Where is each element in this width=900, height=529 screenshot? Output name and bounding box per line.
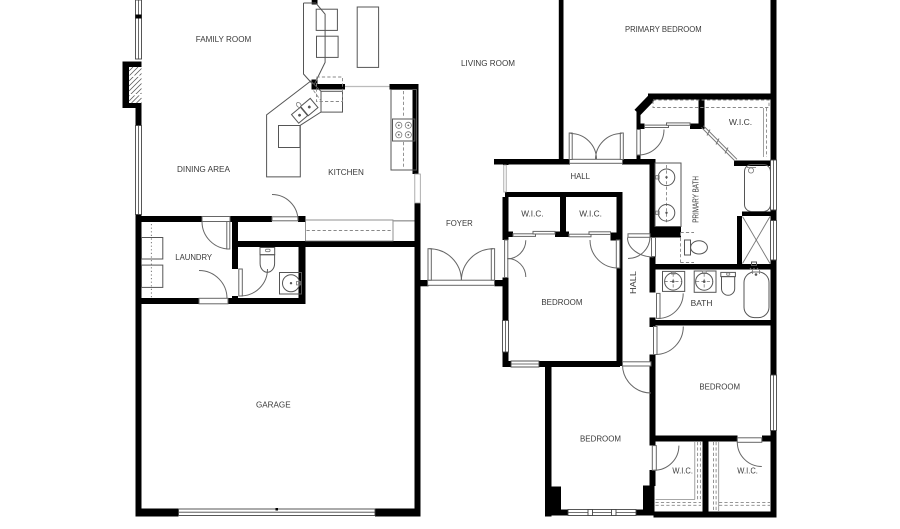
svg-text:HALL: HALL: [570, 171, 590, 181]
svg-text:GARAGE: GARAGE: [256, 399, 291, 409]
svg-text:HALL: HALL: [628, 271, 638, 294]
svg-text:BEDROOM: BEDROOM: [699, 381, 740, 391]
svg-text:W.I.C.: W.I.C.: [521, 208, 543, 218]
svg-text:LIVING ROOM: LIVING ROOM: [461, 58, 515, 68]
svg-text:BATH: BATH: [691, 298, 713, 308]
svg-text:FAMILY ROOM: FAMILY ROOM: [196, 34, 252, 44]
svg-text:W.I.C.: W.I.C.: [672, 465, 693, 475]
svg-text:DINING AREA: DINING AREA: [177, 164, 230, 174]
svg-text:W.I.C.: W.I.C.: [579, 208, 602, 218]
svg-text:W.I.C.: W.I.C.: [737, 465, 758, 475]
svg-text:FOYER: FOYER: [446, 218, 473, 228]
svg-text:PRIMARY BEDROOM: PRIMARY BEDROOM: [625, 24, 702, 34]
svg-text:BEDROOM: BEDROOM: [541, 297, 582, 307]
svg-text:PRIMARY BATH: PRIMARY BATH: [691, 176, 701, 223]
svg-text:W.I.C.: W.I.C.: [729, 117, 752, 127]
svg-text:LAUNDRY: LAUNDRY: [175, 252, 212, 262]
svg-text:BEDROOM: BEDROOM: [580, 433, 621, 443]
svg-text:KITCHEN: KITCHEN: [328, 167, 364, 177]
